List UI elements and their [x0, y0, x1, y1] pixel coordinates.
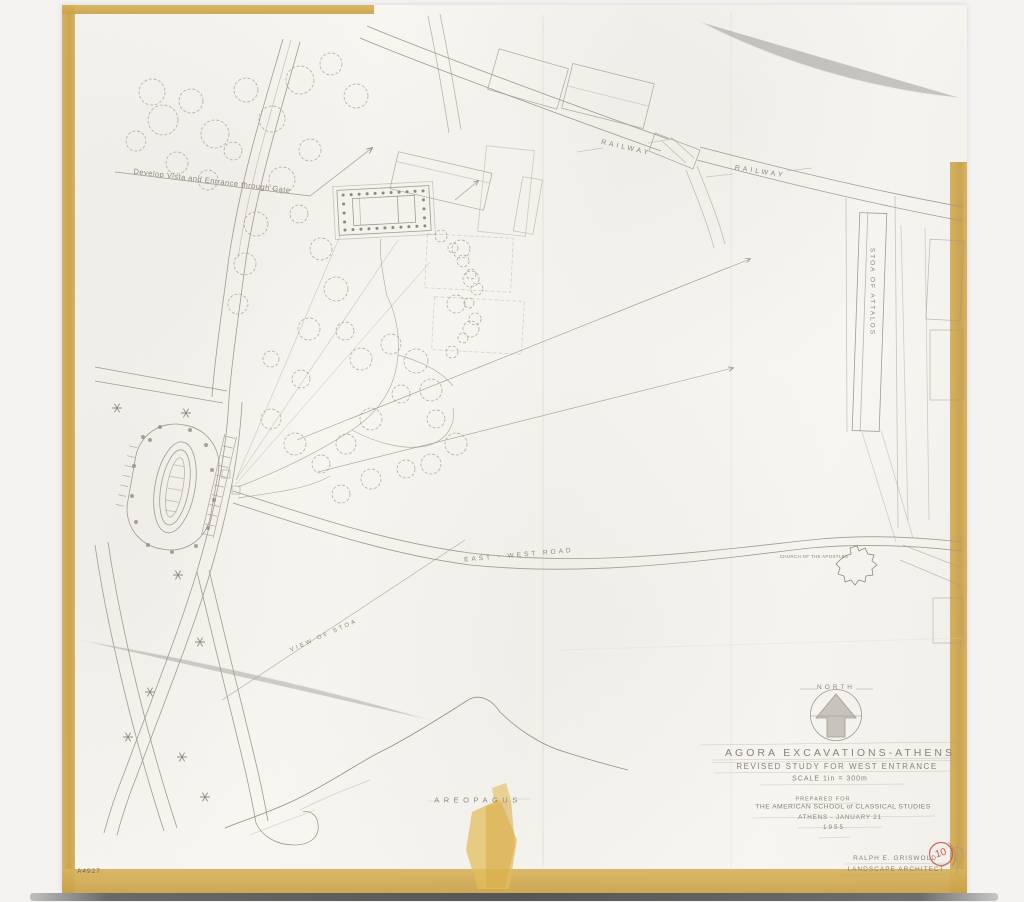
areopagus-contour [225, 697, 628, 835]
oval-plaza [116, 418, 237, 557]
client: THE AMERICAN SCHOOL of CLASSICAL STUDIES [755, 805, 930, 812]
north-arrow-icon [800, 689, 873, 741]
label-stoa-of-attalos: STOA OF ATTALOS [868, 248, 875, 336]
garden-paths [222, 239, 454, 498]
year: 1955 [823, 825, 845, 831]
stoa-of-attalos-outline [846, 196, 929, 528]
prepared-for: PREPARED FOR [796, 797, 851, 803]
label-areopagus: AREOPAGUS [434, 796, 521, 804]
scanner-shadow [30, 893, 998, 901]
roads-southwest [95, 367, 318, 845]
temple-plan [333, 181, 436, 239]
label-church-of-the-apostles: CHURCH OF THE APOSTLES [780, 555, 849, 560]
scanned-drawing: Develop Vista and Entrance through Gate … [0, 0, 1024, 902]
east-west-road [233, 491, 962, 569]
right-edge-blocks [862, 239, 964, 643]
church-shape [836, 546, 877, 585]
label-north: NORTH [817, 685, 855, 692]
sight-lines [222, 181, 750, 700]
drawing-subtitle: REVISED STUDY FOR WEST ENTRANCE [736, 763, 937, 771]
tree-symbols [126, 53, 483, 503]
west-street [212, 39, 300, 399]
place-date: ATHENS - JANUARY 21 [798, 815, 882, 821]
pencil-mark [951, 845, 963, 874]
drawing-title: AGORA EXCAVATIONS-ATHENS [725, 748, 955, 759]
drawing-scale: SCALE 1in = 300m [792, 776, 868, 783]
architect-title: LANDSCAPE ARCHITECT [847, 867, 944, 874]
drawing-number: A4927 [77, 869, 101, 876]
architect-name: RALPH E. GRISWOLD [853, 856, 937, 863]
